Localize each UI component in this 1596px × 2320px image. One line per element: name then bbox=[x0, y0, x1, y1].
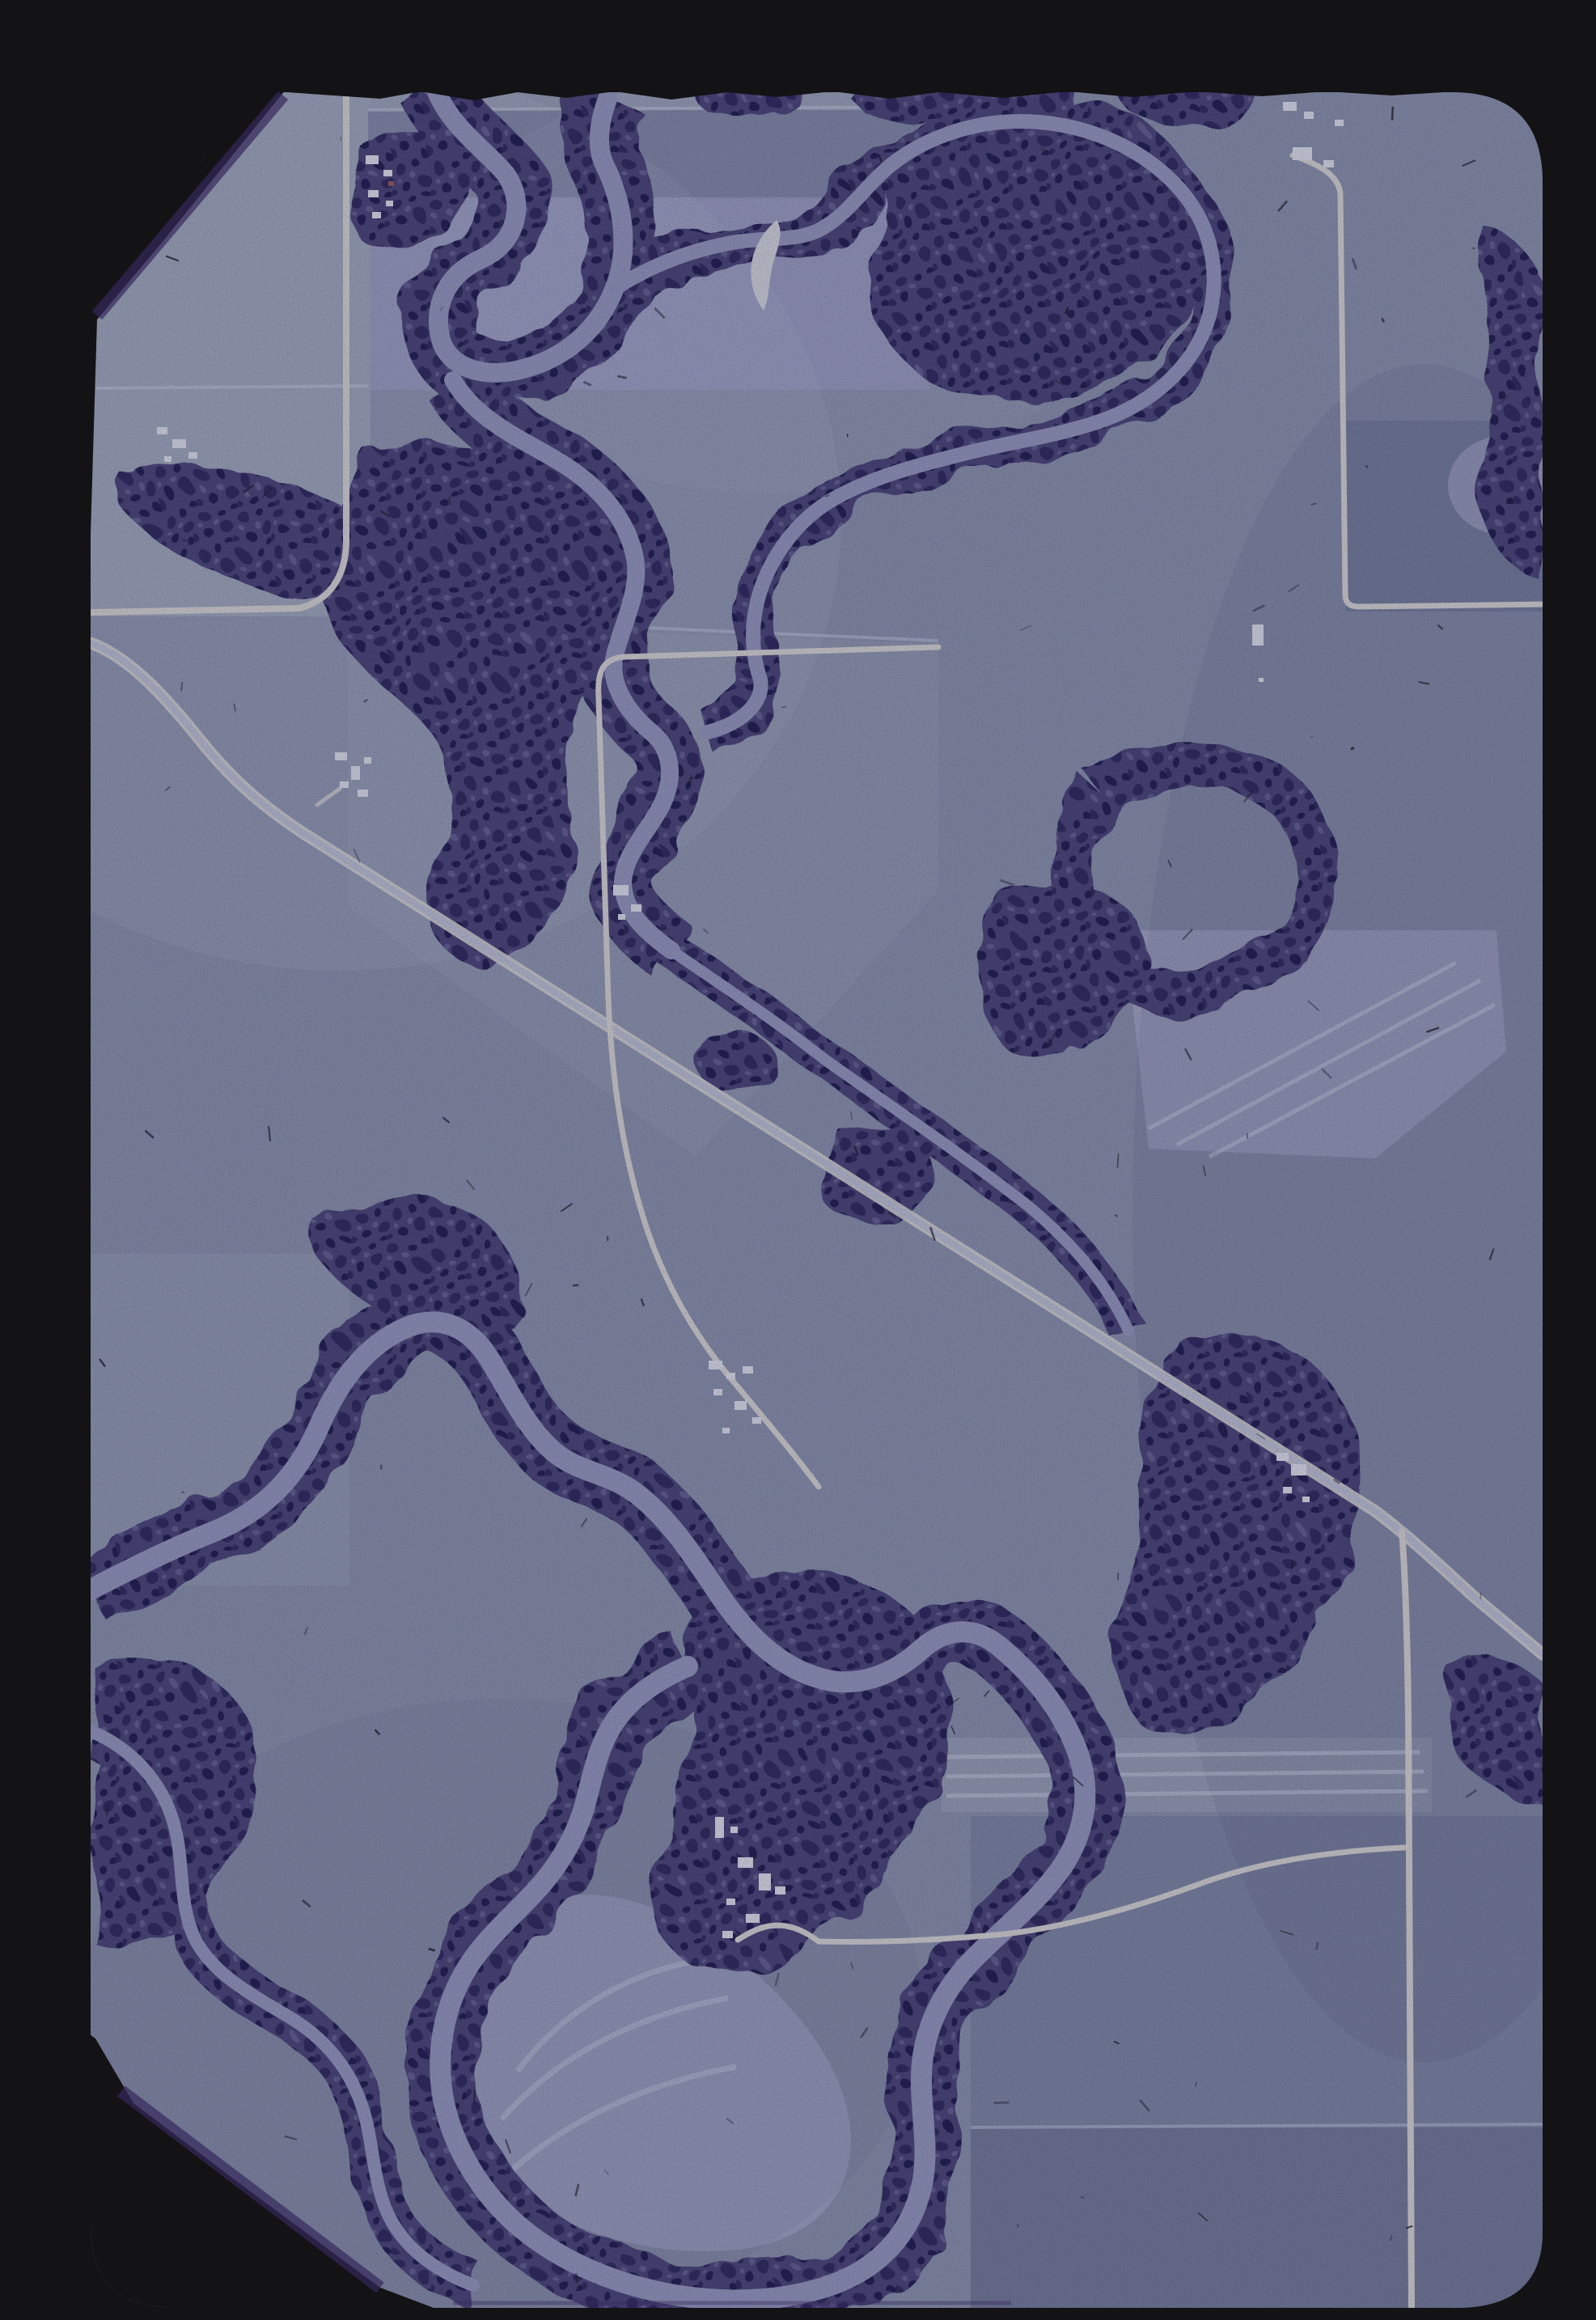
film-grain bbox=[81, 81, 1553, 2320]
bottom-edge-fringe bbox=[453, 2302, 1011, 2304]
dust-speck bbox=[994, 2102, 1010, 2103]
dust-speck bbox=[478, 1233, 480, 1235]
dust-speck bbox=[1472, 248, 1475, 249]
dust-speck bbox=[474, 2089, 475, 2102]
dust-speck bbox=[1351, 747, 1354, 749]
dust-speck bbox=[181, 1492, 184, 1493]
aerial-photo-slide bbox=[0, 0, 1596, 2320]
dust-speck bbox=[576, 2273, 578, 2284]
dust-speck bbox=[755, 1014, 756, 1017]
dust-speck bbox=[573, 1285, 579, 1286]
slide-scan bbox=[0, 0, 1596, 2320]
dust-speck bbox=[847, 434, 848, 437]
dust-speck bbox=[1081, 2197, 1084, 2198]
dust-speck bbox=[450, 497, 451, 505]
photo-area bbox=[0, 47, 1596, 2320]
dust-speck bbox=[1392, 107, 1393, 121]
